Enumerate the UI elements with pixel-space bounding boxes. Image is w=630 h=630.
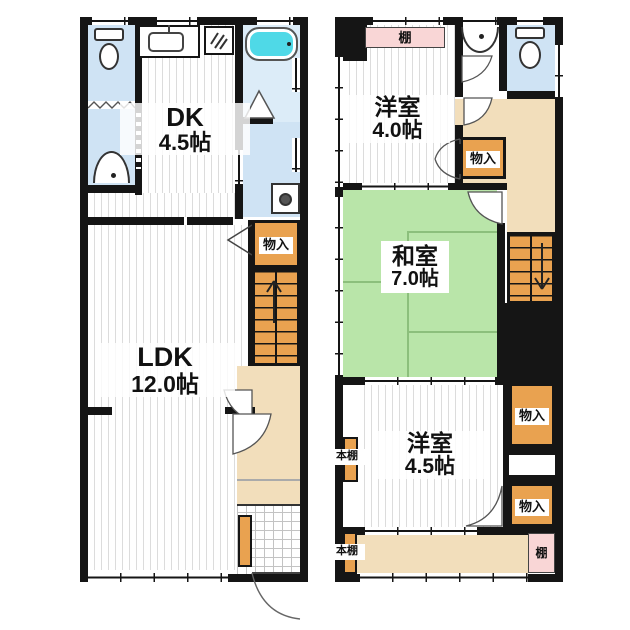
first-floor-plan: 物入	[80, 17, 308, 582]
wall	[80, 17, 88, 582]
toilet-bowl-icon	[519, 41, 541, 69]
wall	[80, 217, 233, 225]
second-floor-plan: 棚 物入 物入 物入 本棚 本棚	[335, 17, 563, 582]
balcony-floor	[357, 535, 528, 573]
closet-label-box: 物入	[515, 408, 549, 425]
closet-label: 物入	[519, 500, 545, 514]
faucet-icon	[168, 25, 170, 33]
drain-dot	[479, 34, 484, 39]
window	[292, 58, 300, 92]
door-arc-icon	[461, 95, 495, 129]
void-area	[503, 303, 555, 385]
sliding-door-mark	[365, 377, 495, 385]
door-arc-icon	[230, 411, 274, 457]
door-arc-icon	[459, 53, 495, 85]
room-area: 4.5帖	[375, 456, 485, 479]
tatami-line	[407, 331, 497, 333]
room-area: 12.0帖	[95, 372, 235, 397]
staircase-down	[507, 232, 555, 304]
hall-step-line	[237, 479, 300, 481]
room-label-western-2: 洋室 4.5帖	[375, 431, 485, 479]
room-name: 洋室	[375, 431, 485, 456]
window	[235, 150, 243, 184]
floor-plan-image: 物入	[0, 0, 630, 630]
room-area: 4.5帖	[120, 131, 250, 155]
closet-door-mark	[226, 223, 252, 257]
room-name: LDK	[95, 343, 235, 372]
window	[257, 17, 293, 25]
bookshelf-label-box: 本棚	[329, 449, 365, 465]
closet-label: 物入	[519, 409, 545, 423]
dk-floor-south	[88, 193, 235, 219]
window	[365, 527, 477, 535]
closet-label-box: 物入	[515, 499, 549, 516]
room-label-dk: DK 4.5帖	[120, 103, 250, 155]
closet-label-box: 物入	[259, 237, 293, 254]
closet: 物入	[509, 483, 555, 527]
room-area: 7.0帖	[391, 269, 439, 291]
shelf-label: 棚	[529, 534, 554, 572]
closet-label: 物入	[470, 152, 496, 166]
washer-drum	[279, 193, 292, 206]
wall	[503, 475, 555, 483]
wall-gap	[509, 455, 555, 475]
window	[292, 138, 300, 172]
toilet-bowl-icon	[99, 43, 119, 70]
room-name: 和室	[392, 244, 438, 269]
window	[335, 57, 343, 187]
room-label-ldk: LDK 12.0帖	[95, 343, 235, 397]
room-label-western-1: 洋室 4.0帖	[345, 95, 450, 143]
room-name: 洋室	[345, 95, 450, 120]
window	[373, 17, 443, 25]
wall	[503, 447, 555, 455]
staircase-up	[252, 268, 300, 366]
hallway-floor	[507, 99, 555, 232]
room-area: 4.0帖	[345, 120, 450, 143]
wall-opening-mark	[184, 217, 187, 225]
wall-stub	[80, 407, 112, 415]
shelf-label: 棚	[366, 28, 444, 48]
closet-label-box: 物入	[466, 151, 500, 168]
balcony-rail-window	[360, 573, 528, 582]
window	[92, 17, 128, 25]
room-name: DK	[120, 103, 250, 131]
closet-double-door-icon	[432, 136, 462, 182]
wall	[555, 17, 563, 582]
void-area	[343, 25, 367, 61]
closet: 物入	[509, 383, 555, 447]
wall	[300, 17, 308, 582]
bookshelf-label: 本棚	[336, 451, 358, 463]
window	[157, 17, 197, 25]
stairs-down-arrow-icon	[532, 237, 552, 299]
tatami-line	[407, 231, 497, 233]
closet: 物入	[252, 220, 300, 268]
wall	[507, 91, 555, 99]
closet: 物入	[460, 137, 506, 179]
bookshelf-label-box: 本棚	[329, 544, 365, 560]
bookshelf-label: 本棚	[336, 546, 358, 558]
wall	[88, 185, 142, 193]
toilet-icon	[94, 28, 124, 41]
stove-icon	[204, 26, 234, 55]
window	[335, 197, 343, 375]
window	[517, 17, 543, 25]
washing-machine-icon	[271, 183, 300, 214]
sink-basin	[148, 32, 184, 52]
door-arc-icon	[463, 483, 505, 529]
door-arc-icon	[465, 189, 505, 227]
stairs-up-arrow-icon	[261, 273, 287, 329]
drain-dot	[287, 42, 291, 46]
sliding-door-mark	[362, 183, 448, 190]
shelf: 棚	[528, 533, 555, 573]
bathtub-icon	[245, 27, 298, 61]
shelf: 棚	[365, 27, 445, 48]
window	[463, 17, 497, 25]
shoe-cabinet	[238, 515, 252, 567]
window	[88, 573, 228, 582]
toilet-icon	[515, 27, 545, 39]
drain-dot	[111, 173, 116, 178]
entrance-door-arc-icon	[248, 563, 308, 625]
wall	[499, 25, 507, 91]
kitchen-sink-icon	[138, 25, 200, 58]
window	[555, 45, 563, 97]
room-label-japanese: 和室 7.0帖	[381, 241, 449, 293]
closet-label: 物入	[263, 238, 289, 252]
